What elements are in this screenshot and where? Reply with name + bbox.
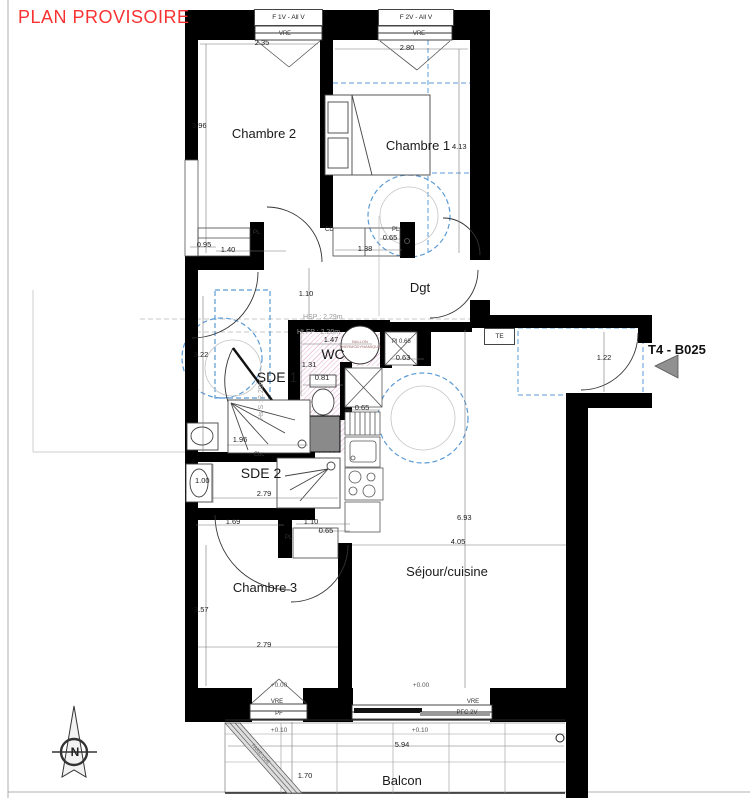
ceiling-height-hs-s: Hs S : 2.20m xyxy=(258,380,265,420)
room-label-chambre2: Chambre 2 xyxy=(232,127,296,140)
closet-label-cd: CD xyxy=(325,227,334,233)
dim-wc-b: 1.31 xyxy=(302,361,317,369)
dim-sejour-width: 4.05 xyxy=(451,538,466,546)
room-label-wc: WC xyxy=(321,347,344,361)
bed xyxy=(325,95,430,175)
room-label-dgt: Dgt xyxy=(410,281,430,294)
window-tag-f1v: F 1V - All V xyxy=(254,9,323,26)
vre-label-4: VRE xyxy=(467,699,479,705)
dim-kitchen: 0.65 xyxy=(355,404,370,412)
label-cbc: Cbc xyxy=(254,452,265,458)
dim-sde1-width: 3.22 xyxy=(194,351,209,359)
plan-title: PLAN PROVISOIRE xyxy=(18,8,190,26)
room-label-chambre3: Chambre 3 xyxy=(233,581,297,594)
drain-symbol xyxy=(556,734,564,742)
dim-dgt: 1.10 xyxy=(299,290,314,298)
pf-label: PF xyxy=(275,711,283,717)
vre-label-1: VRE xyxy=(279,31,291,37)
north-letter: N xyxy=(71,746,80,758)
level-mark-2: +0.00 xyxy=(413,683,429,690)
dim-window-2: 2.80 xyxy=(400,44,415,52)
dim-c1-b: 1.38 xyxy=(358,245,373,253)
neighbour-outline xyxy=(33,290,185,452)
closet-label-pl-c2: PL xyxy=(253,230,260,236)
dim-wc-c: 0.81 xyxy=(315,374,330,382)
dim-sde1-shower: 1.96 xyxy=(233,436,248,444)
entrance-arrow xyxy=(655,355,678,378)
dim-entry-door: 1.22 xyxy=(597,354,612,362)
level-mark-4: +0.10 xyxy=(412,728,428,735)
dim-sde2-b: 2.79 xyxy=(257,490,272,498)
dim-wc-a: 1.47 xyxy=(324,336,339,344)
dim-sejour-height: 6.93 xyxy=(457,514,472,522)
level-mark-1: +0.00 xyxy=(271,683,287,690)
shower-sde2 xyxy=(277,458,340,508)
washbasin-sde1 xyxy=(187,423,218,450)
dim-pl-a: 0.63 xyxy=(396,354,411,362)
dim-balcony-depth: 1.70 xyxy=(298,772,313,780)
window-tag-f2v: F 2V - All V xyxy=(378,9,454,26)
dim-c3-b: 1.10 xyxy=(304,518,319,526)
room-label-chambre1: Chambre 1 xyxy=(386,139,450,152)
vre-label-2: VRE xyxy=(413,31,425,37)
floor-plan-drawing xyxy=(0,0,752,800)
dim-c2-a: 0.95 xyxy=(197,241,212,249)
dim-window-1: 2.35 xyxy=(255,39,270,47)
dim-c1-a: 0.65 xyxy=(383,234,398,242)
dim-c3-a: 1.69 xyxy=(226,518,241,526)
room-label-balcon: Balcon xyxy=(382,774,422,787)
level-mark-3: +0.10 xyxy=(271,728,287,735)
pfc2v-label: PFC 2V xyxy=(456,710,477,716)
room-label-sejour: Séjour/cuisine xyxy=(406,565,488,578)
dim-chambre3-height: 3.57 xyxy=(194,606,209,614)
vre-label-3: VRE xyxy=(271,699,283,705)
ceiling-height-hsp: HSP : 2.29m xyxy=(303,314,343,321)
room-label-sde2: SDE 2 xyxy=(241,466,281,480)
unit-label: T4 - B025 xyxy=(648,343,706,356)
dim-chambre1-height: 4.13 xyxy=(452,143,467,151)
floor-plan-page: PLAN PROVISOIRE F 1V - All V F 2V - All … xyxy=(0,0,752,800)
dim-chambre3-width: 2.79 xyxy=(257,641,272,649)
dim-c2-b: 1.40 xyxy=(221,246,236,254)
electrical-panel-tag: TE xyxy=(484,328,515,345)
closet-label-pl066: Pl 0.66 xyxy=(392,339,411,345)
dim-chambre2-height: 3.96 xyxy=(192,122,207,130)
closet-label-pl-c3: PL xyxy=(285,535,292,541)
water-heater-label-2: THERMODYNAMIQUE xyxy=(339,345,381,349)
dim-sde2-a: 1.00 xyxy=(195,477,210,485)
dim-c3-c: 0.65 xyxy=(319,527,334,535)
dim-balcony-width: 5.94 xyxy=(395,741,410,749)
north-compass xyxy=(52,706,97,777)
